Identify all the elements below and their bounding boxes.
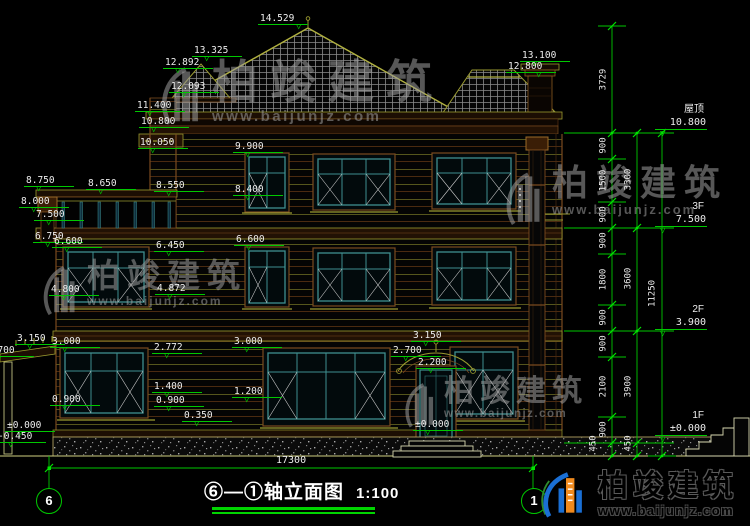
elevation-triangle-icon: ▽ (536, 70, 541, 80)
title-text: ⑥—①轴立面图 (204, 482, 344, 503)
elevation-marker: 2.700 ▽ (0, 345, 34, 357)
elevation-value: 9.900 (233, 141, 283, 153)
elevation-value: 13.325 (192, 45, 242, 57)
watermark-brand: 柏竣建筑 (212, 58, 444, 106)
elevation-value: 2.200 (416, 357, 466, 369)
floor-name: 屋顶 (655, 104, 707, 116)
elevation-triangle-icon: ▽ (244, 345, 249, 355)
elevation-triangle-icon: ▽ (8, 440, 13, 450)
window (429, 247, 521, 308)
elevation-marker: 3.000 ▽ (232, 336, 282, 348)
elevation-value: 10.050 (138, 137, 188, 149)
elevation-value: ±0.000 (413, 419, 463, 431)
dim-chain-label: 11250 (647, 274, 660, 314)
elevation-marker: 14.529 ▽ (258, 13, 308, 25)
elevation-marker: 8.750 ▽ (24, 175, 74, 187)
elevation-marker: 2.200 ▽ (416, 357, 466, 369)
elevation-triangle-icon: ▽ (64, 245, 69, 255)
elevation-triangle-icon: ▽ (166, 404, 171, 414)
elevation-value: 7.500 (34, 209, 84, 221)
elevation-marker: 8.550 ▽ (154, 180, 204, 192)
elevation-value: 10.800 (139, 116, 189, 128)
dim-chain-label: 3600 (623, 259, 636, 299)
brand-logo: 柏竣建筑 www.baijunjz.com (538, 466, 738, 522)
elevation-triangle-icon: ▽ (45, 240, 50, 250)
title-underline (212, 507, 375, 510)
elevation-marker: 11.400 ▽ (135, 100, 185, 112)
window (57, 348, 155, 420)
elevation-triangle-icon: ▽ (660, 329, 665, 339)
elevation-marker: ±0.000 ▽ (413, 419, 463, 431)
elevation-triangle-icon: ▽ (660, 226, 665, 236)
elevation-value: 3.000 (50, 336, 100, 348)
elevation-triangle-icon: ▽ (660, 435, 665, 445)
elevation-triangle-icon: ▽ (166, 189, 171, 199)
elevation-triangle-icon: ▽ (428, 366, 433, 376)
elevation-marker: 3.150 ▽ (411, 330, 461, 342)
elevation-marker: 4.872 ▽ (155, 283, 205, 295)
dim-chain-label: 2100 (598, 367, 611, 407)
elevation-value: 0.900 (50, 394, 100, 406)
floor-marker: 1F ±0.000 ▽ (655, 410, 707, 436)
elevation-value: 8.400 (233, 184, 283, 196)
elevation-triangle-icon: ▽ (181, 90, 186, 100)
title-scale: 1:100 (356, 485, 399, 502)
elevation-marker: 7.500 ▽ (34, 209, 84, 221)
elevation-marker: 8.650 ▽ (86, 178, 136, 190)
elevation-marker: 6.450 ▽ (154, 240, 204, 252)
elevation-triangle-icon: ▽ (46, 218, 51, 228)
elevation-marker: 1.200 ▽ (232, 386, 282, 398)
elevation-triangle-icon: ▽ (164, 351, 169, 361)
watermark-brand: 柏竣建筑 (444, 376, 588, 408)
title-underline-2 (212, 512, 375, 514)
elevation-triangle-icon: ▽ (425, 428, 430, 438)
floor-elevation: 10.800 (655, 116, 707, 130)
elevation-marker: 12.892 ▽ (163, 57, 213, 69)
elevation-marker: 13.325 ▽ (192, 45, 242, 57)
window (242, 153, 292, 213)
elevation-triangle-icon: ▽ (151, 125, 156, 135)
elevation-value: 12.093 (169, 81, 219, 93)
elevation-marker: 12.800 ▽ (506, 61, 556, 73)
elevation-triangle-icon: ▽ (0, 354, 1, 364)
elevation-value: -0.450 (0, 431, 46, 443)
baijun-building-icon (503, 164, 545, 228)
elevation-value: 2.700 (0, 345, 34, 357)
elevation-triangle-icon: ▽ (245, 150, 250, 160)
floor-name: 1F (655, 410, 707, 422)
watermark-url: www.baijunjz.com (212, 108, 444, 125)
elevation-marker: 3.000 ▽ (50, 336, 100, 348)
elevation-triangle-icon: ▽ (36, 184, 41, 194)
elevation-triangle-icon: ▽ (660, 129, 665, 139)
dim-chain-label: 1800 (598, 260, 611, 300)
elevation-value: 2.700 (391, 345, 441, 357)
brand-logo-url: www.baijunjz.com (598, 503, 738, 518)
elevation-triangle-icon: ▽ (62, 403, 67, 413)
floor-elevation: ±0.000 (655, 422, 707, 436)
elevation-marker: 9.900 ▽ (233, 141, 283, 153)
window (310, 154, 398, 212)
elevation-marker: 2.700 ▽ (391, 345, 441, 357)
elevation-value: 4.800 (49, 284, 99, 296)
floor-marker: 2F 3.900 ▽ (655, 304, 707, 330)
window (242, 247, 292, 309)
floor-marker: 屋顶 10.800 ▽ (655, 104, 707, 130)
elevation-triangle-icon: ▽ (194, 419, 199, 429)
elevation-triangle-icon: ▽ (175, 66, 180, 76)
elevation-value: 6.600 (234, 234, 284, 246)
drawing-title: ⑥—①轴立面图1:100 (204, 481, 399, 505)
elevation-value: 6.600 (52, 236, 102, 248)
elevation-value: 0.900 (154, 395, 204, 407)
watermark-url: www.baijunjz.com (444, 408, 588, 420)
window (310, 248, 398, 309)
elevation-triangle-icon: ▽ (245, 193, 250, 203)
elevation-value: 8.750 (24, 175, 74, 187)
elevation-triangle-icon: ▽ (62, 345, 67, 355)
floor-name: 2F (655, 304, 707, 316)
elevation-marker: 0.900 ▽ (154, 395, 204, 407)
elevation-triangle-icon: ▽ (61, 293, 66, 303)
dim-chain-label: 3900 (623, 367, 636, 407)
floor-elevation: 7.500 (655, 213, 707, 227)
elevation-triangle-icon: ▽ (296, 22, 301, 32)
elevation-value: 12.800 (506, 61, 556, 73)
elevation-triangle-icon: ▽ (166, 249, 171, 259)
elevation-value: 8.650 (86, 178, 136, 190)
elevation-value: 2.772 (152, 342, 202, 354)
brand-logo-text: 柏竣建筑 (598, 471, 738, 503)
elevation-marker: 1.400 ▽ (152, 381, 202, 393)
floor-elevation: 3.900 (655, 316, 707, 330)
elevation-triangle-icon: ▽ (244, 395, 249, 405)
elevation-value: 0.350 (182, 410, 232, 422)
elevation-value: 4.872 (155, 283, 205, 295)
elevation-value: 12.892 (163, 57, 213, 69)
dim-chain-label: 3729 (598, 60, 611, 100)
elevation-triangle-icon: ▽ (150, 146, 155, 156)
overall-width-dim: 17300 (276, 455, 306, 467)
axis-bubble-6: 6 (36, 488, 62, 514)
dim-chain-label: 450 (623, 424, 636, 464)
elevation-value: 6.450 (154, 240, 204, 252)
floor-name: 3F (655, 201, 707, 213)
elevation-marker: 4.800 ▽ (49, 284, 99, 296)
elevation-marker: -0.450 ▽ (0, 431, 46, 443)
elevation-value: 8.000 (19, 196, 69, 208)
elevation-marker: 0.900 ▽ (50, 394, 100, 406)
elevation-marker: 10.050 ▽ (138, 137, 188, 149)
dim-chain-label: 900 (598, 324, 611, 364)
watermark-brand: 柏竣建筑 (552, 164, 728, 202)
dim-chain-label: 900 (598, 221, 611, 261)
dim-chain-label: 3300 (623, 160, 636, 200)
dim-chain-label: 900 (598, 126, 611, 166)
elevation-triangle-icon: ▽ (246, 243, 251, 253)
elevation-value: 11.400 (135, 100, 185, 112)
elevation-value: 3.150 (411, 330, 461, 342)
cad-canvas: 柏竣建筑 www.baijunjz.com 柏竣建筑 www.baijunjz.… (0, 0, 750, 526)
elevation-marker: 2.772 ▽ (152, 342, 202, 354)
elevation-value: 8.550 (154, 180, 204, 192)
brand-logo-icon (538, 466, 594, 522)
elevation-triangle-icon: ▽ (98, 187, 103, 197)
elevation-marker: 8.000 ▽ (19, 196, 69, 208)
elevation-triangle-icon: ▽ (403, 354, 408, 364)
floor-marker: 3F 7.500 ▽ (655, 201, 707, 227)
elevation-marker: 12.093 ▽ (169, 81, 219, 93)
elevation-marker: 8.400 ▽ (233, 184, 283, 196)
elevation-triangle-icon: ▽ (167, 292, 172, 302)
elevation-value: 3.000 (232, 336, 282, 348)
plinth (0, 437, 750, 456)
dim-chain-label: 450 (588, 424, 601, 464)
elevation-value: 1.200 (232, 386, 282, 398)
elevation-value: 1.400 (152, 381, 202, 393)
elevation-marker: 0.350 ▽ (182, 410, 232, 422)
elevation-marker: 6.600 ▽ (234, 234, 284, 246)
elevation-marker: 10.800 ▽ (139, 116, 189, 128)
elevation-marker: 6.600 ▽ (52, 236, 102, 248)
